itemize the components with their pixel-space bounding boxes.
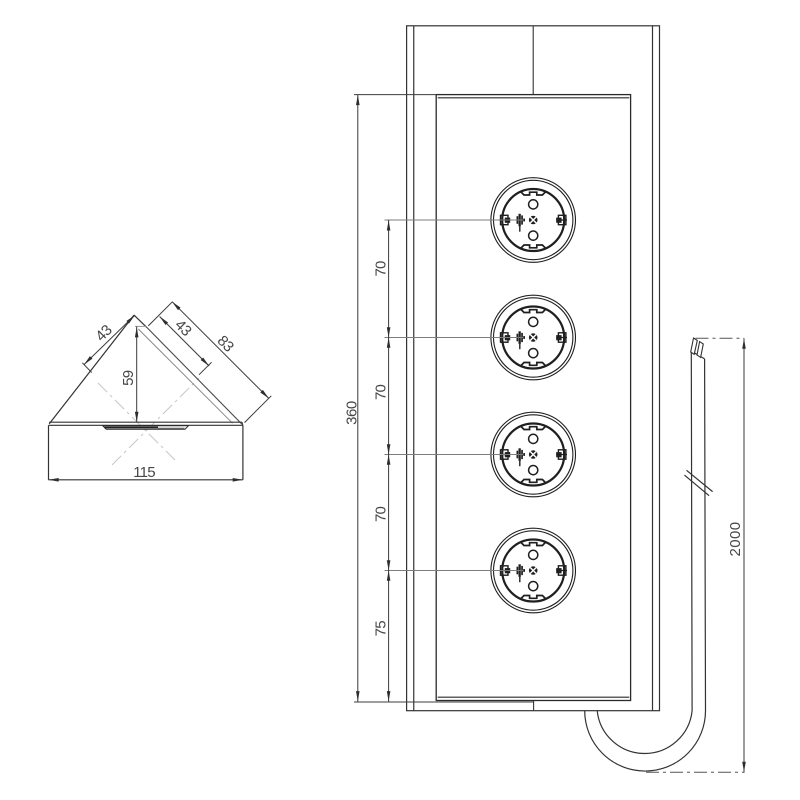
svg-text:115: 115 [133,464,155,481]
svg-text:360: 360 [344,401,361,425]
svg-text:70: 70 [372,507,389,523]
svg-text:70: 70 [372,385,389,401]
svg-text:59: 59 [120,370,137,386]
svg-text:75: 75 [373,621,390,637]
svg-text:70: 70 [372,261,389,277]
svg-text:2000: 2000 [727,522,744,557]
